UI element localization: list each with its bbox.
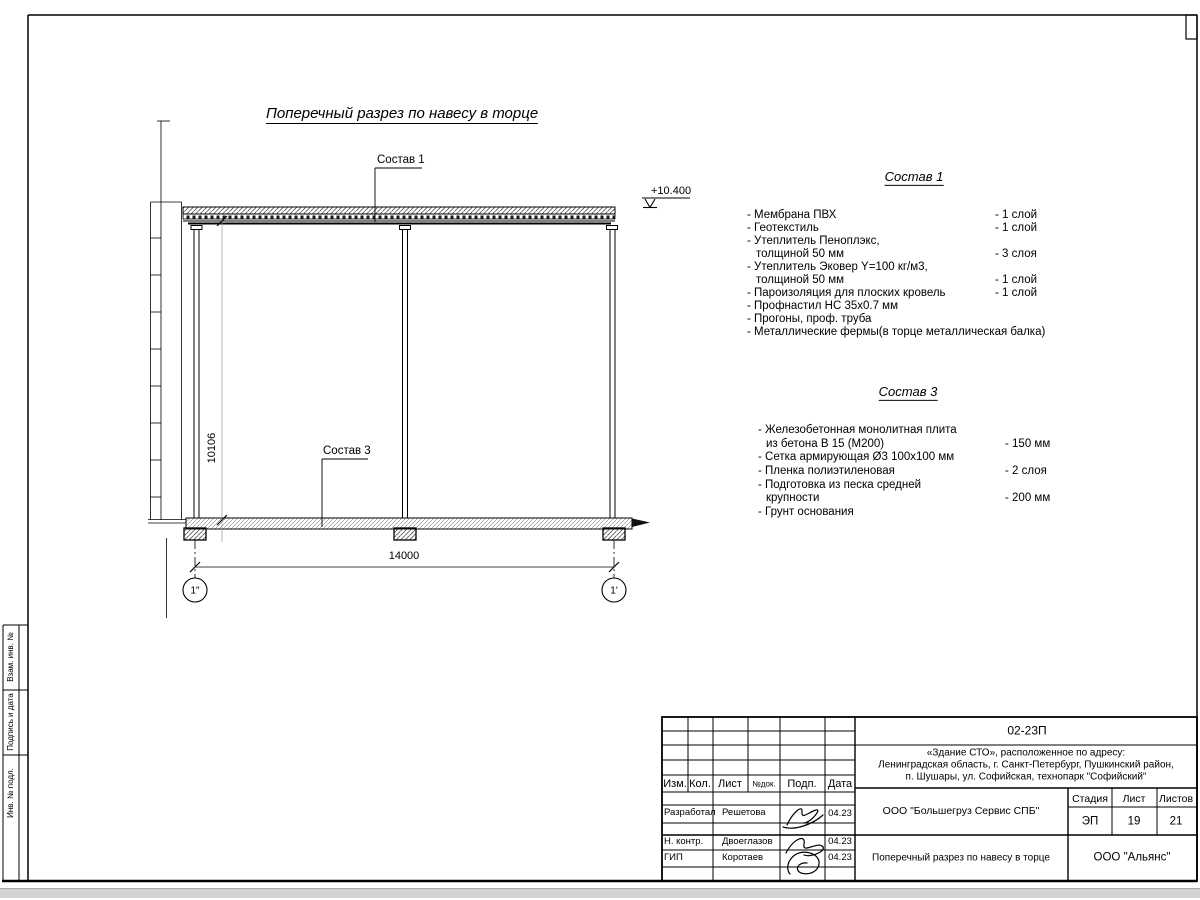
sostav3-heading: Состав 3 (879, 385, 938, 399)
callout-sostav3-label: Состав 3 (323, 445, 371, 458)
col-header-data: Дата (828, 778, 852, 790)
object-address-line2: Ленинградская область, г. Санкт-Петербур… (878, 760, 1174, 771)
contractor-name: ООО "Альянс" (1094, 852, 1171, 865)
list-item: - Пленка полиэтиленовая- 2 слоя (758, 465, 1188, 479)
object-address-line3: п. Шушары, ул. Софийская, технопарк "Соф… (906, 772, 1147, 783)
sostav1-list: - Мембрана ПВХ- 1 слой - Геотекстиль- 1 … (747, 209, 1177, 339)
list-item: из бетона В 15 (М200)- 150 мм (758, 438, 1188, 452)
list-item: толщиной 50 мм- 1 слой (747, 274, 1177, 287)
list-item: - Утеплитель Эковер Y=100 кг/м3, (747, 261, 1177, 274)
dim-height-label: 10106 (206, 403, 218, 493)
axis-label-right: 1' (610, 586, 617, 597)
list-item: - Прогоны, проф. труба (747, 313, 1177, 326)
signature-razrabotal (783, 809, 823, 828)
col-header-kol: Кол. (689, 778, 711, 790)
signatures (783, 809, 823, 874)
list-item: - Железобетонная монолитная плита (758, 424, 1188, 438)
elevation-mark: +10.400 (651, 185, 691, 197)
signature-gip (786, 838, 823, 874)
list-item: - Мембрана ПВХ- 1 слой (747, 209, 1177, 222)
adjacent-wall (148, 121, 186, 618)
leaders (322, 168, 690, 527)
list-item: - Утеплитель Пеноплэкс, (747, 235, 1177, 248)
doc-number: 02-23П (1007, 724, 1046, 737)
list-item: - Металлические фермы(в торце металличес… (747, 326, 1177, 339)
stage-value: ЭП (1082, 816, 1099, 829)
list-item: - Профнастил НС 35х0.7 мм (747, 300, 1177, 313)
sostav3-list: - Железобетонная монолитная плита из бет… (758, 424, 1188, 520)
date-gip: 04.23 (828, 853, 852, 863)
drawing-sheet: Поперечный разрез по навесу в торце Сост… (0, 0, 1200, 900)
date-razrabotal: 04.23 (828, 809, 852, 819)
callout-sostav1-label: Состав 1 (377, 154, 425, 167)
sheet-label: Лист (1123, 794, 1146, 806)
role-razrabotal: Разработал (664, 808, 716, 818)
list-item: - Грунт основания (758, 506, 1188, 520)
sheet-title: Поперечный разрез по навесу в торце (872, 853, 1050, 864)
sidebar-label-inv-podl: Инв. № подл. (4, 761, 18, 825)
role-nkontr: Н. контр. (664, 837, 703, 847)
col-header-izm: Изм. (663, 778, 687, 790)
object-address-line1: «Здание СТО», расположенное по адресу: (927, 748, 1125, 759)
role-gip: ГИП (664, 853, 683, 863)
paper-bottom-edge (0, 888, 1200, 898)
list-item: - Пароизоляция для плоских кровель- 1 сл… (747, 287, 1177, 300)
sostav1-heading: Состав 1 (885, 170, 944, 184)
date-nkontr: 04.23 (828, 837, 852, 847)
axis-label-left: 1" (190, 586, 199, 597)
list-item: - Подготовка из песка средней (758, 479, 1188, 493)
name-dvoeglazov: Двоеглазов (722, 837, 773, 847)
columns (191, 226, 618, 519)
sidebar-label-vzam-inv: Взам. инв. № (4, 625, 18, 689)
stage-label: Стадия (1072, 794, 1108, 806)
list-item: - Геотекстиль- 1 слой (747, 222, 1177, 235)
dim-width-label: 14000 (389, 550, 420, 562)
col-header-list: Лист (718, 778, 742, 790)
list-item: крупности- 200 мм (758, 492, 1188, 506)
roof-assembly (183, 207, 615, 224)
sheets-label: Листов (1159, 794, 1193, 806)
col-header-ndok: №док. (752, 781, 775, 790)
list-item: толщиной 50 мм- 3 слоя (747, 248, 1177, 261)
slab-and-foundations (184, 518, 650, 540)
sheets-value: 21 (1170, 816, 1183, 829)
sheet-value: 19 (1128, 816, 1141, 829)
name-korotaev: Коротаев (722, 853, 763, 863)
company-name: ООО "Большегруз Сервис СПБ" (883, 806, 1040, 818)
name-reshetova: Решетова (722, 808, 766, 818)
col-header-podp: Подп. (787, 778, 816, 790)
drawing-title: Поперечный разрез по навесу в торце (266, 106, 538, 123)
list-item: - Сетка армирующая Ø3 100x100 мм (758, 451, 1188, 465)
sidebar-label-podp-data: Подпись и дата (4, 690, 18, 754)
